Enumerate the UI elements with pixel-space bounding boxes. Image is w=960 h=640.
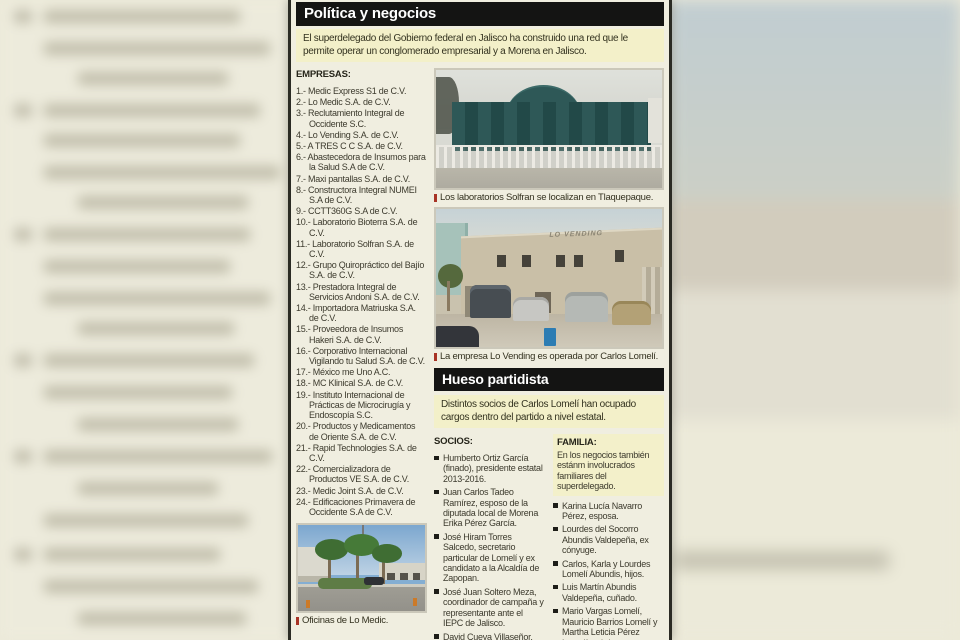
square-bullet-icon bbox=[434, 634, 439, 639]
company-list-item: 11.- Laboratorio Solfran S.A. de C.V. bbox=[296, 239, 427, 259]
company-name: 16.- Corporativo Internacional Vigilando… bbox=[296, 346, 425, 366]
section-title-text: Hueso partidista bbox=[442, 371, 549, 387]
hueso-intro-box: Distintos socios de Carlos Lomelí han oc… bbox=[434, 395, 664, 428]
company-name: 20.- Productos y Medicamentos de Oriente… bbox=[296, 421, 415, 441]
square-bullet-icon bbox=[553, 609, 558, 614]
company-list-item: 24.- Edificaciones Primavera de Occident… bbox=[296, 497, 427, 517]
familiar-text: Lourdes del Socorro Abundis Valdepeña, e… bbox=[562, 524, 649, 555]
company-list-item: 6.- Abastecedora de Insumos para la Salu… bbox=[296, 152, 427, 172]
companies-column: EMPRESAS: 1.- Medic Express S1 de C.V. 2… bbox=[296, 67, 427, 640]
company-list-item: 12.- Grupo Quiropráctico del Bajío S.A. … bbox=[296, 260, 427, 280]
company-name: 5.- A TRES C C S.A. de C.V. bbox=[296, 141, 403, 151]
familiar-list-item: Carlos, Karla y Lourdes Lomelí Abundis, … bbox=[553, 559, 664, 580]
company-name: 9.- CCTT360G S.A de C.V. bbox=[296, 206, 397, 216]
politica-intro-box: El superdelegado del Gobierno federal en… bbox=[296, 29, 664, 62]
familia-header-box: FAMILIA: En los negocios también estánm … bbox=[553, 434, 664, 496]
section-title-hueso: Hueso partidista bbox=[434, 368, 664, 391]
newspaper-infographic: Política y negocios El superdelegado del… bbox=[0, 0, 960, 640]
company-name: 19.- Instituto Internacional de Práctica… bbox=[296, 390, 410, 420]
square-bullet-icon bbox=[553, 503, 558, 508]
company-list-item: 15.- Proveedora de Insumos Hakeri S.A. d… bbox=[296, 324, 427, 344]
socio-list-item: Humberto Ortiz García (finado), presiden… bbox=[434, 453, 545, 484]
caption-solfran: Los laboratorios Solfran se localizan en… bbox=[434, 190, 664, 207]
caption-text: La empresa Lo Vending es operada por Car… bbox=[440, 352, 658, 362]
familiar-text: Mario Vargas Lomelí, Mauricio Barrios Lo… bbox=[562, 606, 657, 640]
red-bullet-icon bbox=[434, 353, 437, 361]
company-name: 4.- Lo Vending S.A. de C.V. bbox=[296, 130, 399, 140]
company-name: 18.- MC Klinical S.A. de C.V. bbox=[296, 378, 403, 388]
section-title-text: Política y negocios bbox=[304, 5, 436, 22]
socio-list-item: Juan Carlos Tadeo Ramírez, esposo de la … bbox=[434, 487, 545, 529]
company-list-item: 17.- México me Uno A.C. bbox=[296, 367, 427, 377]
familia-intro: En los negocios también estánm involucra… bbox=[557, 450, 660, 492]
company-name: 2.- Lo Medic S.A. de C.V. bbox=[296, 97, 390, 107]
caption-lo-medic: Oficinas de Lo Medic. bbox=[296, 613, 427, 630]
background-blur-right bbox=[668, 0, 960, 640]
companies-list: 1.- Medic Express S1 de C.V. 2.- Lo Medi… bbox=[296, 86, 427, 517]
photo-lo-vending: LO VENDING bbox=[434, 207, 664, 349]
square-bullet-icon bbox=[434, 534, 439, 539]
familiar-text: Carlos, Karla y Lourdes Lomelí Abundis, … bbox=[562, 559, 650, 579]
socio-list-item: José Hiram Torres Salcedo, secretario pa… bbox=[434, 532, 545, 584]
company-list-item: 10.- Laboratorio Bioterra S.A. de C.V. bbox=[296, 217, 427, 237]
company-name: 23.- Medic Joint S.A. de C.V. bbox=[296, 486, 403, 496]
partido-columns: SOCIOS: Humberto Ortiz García (finado), … bbox=[434, 434, 664, 640]
familia-label: FAMILIA: bbox=[557, 437, 660, 448]
company-name: 1.- Medic Express S1 de C.V. bbox=[296, 86, 406, 96]
familiar-text: Luis Martín Abundis Valdepeña, cuñado. bbox=[562, 582, 637, 602]
square-bullet-icon bbox=[434, 456, 439, 461]
company-name: 17.- México me Uno A.C. bbox=[296, 367, 390, 377]
square-bullet-icon bbox=[553, 585, 558, 590]
company-list-item: 1.- Medic Express S1 de C.V. bbox=[296, 86, 427, 96]
red-bullet-icon bbox=[434, 194, 437, 202]
square-bullet-icon bbox=[553, 527, 558, 532]
company-list-item: 2.- Lo Medic S.A. de C.V. bbox=[296, 97, 427, 107]
square-bullet-icon bbox=[434, 589, 439, 594]
socio-text: Juan Carlos Tadeo Ramírez, esposo de la … bbox=[443, 487, 538, 528]
company-name: 8.- Constructora Integral NUMEI S.A de C… bbox=[296, 185, 417, 205]
company-name: 22.- Comercializadora de Productos VE S.… bbox=[296, 464, 409, 484]
infographic-panel: Política y negocios El superdelegado del… bbox=[288, 0, 672, 640]
company-name: 14.- Importadora Matriuska S.A. de C.V. bbox=[296, 303, 416, 323]
photo-solfran-lab bbox=[434, 68, 664, 190]
socios-list: Humberto Ortiz García (finado), presiden… bbox=[434, 453, 545, 640]
socio-text: David Cueva Villaseñor, secretario de Fi… bbox=[443, 632, 540, 640]
company-list-item: 5.- A TRES C C S.A. de C.V. bbox=[296, 141, 427, 151]
company-name: 10.- Laboratorio Bioterra S.A. de C.V. bbox=[296, 217, 417, 237]
socio-list-item: José Juan Soltero Meza, coordinador de c… bbox=[434, 587, 545, 629]
company-list-item: 23.- Medic Joint S.A. de C.V. bbox=[296, 486, 427, 496]
socios-label: SOCIOS: bbox=[434, 436, 545, 447]
company-name: 11.- Laboratorio Solfran S.A. de C.V. bbox=[296, 239, 414, 259]
familiar-list-item: Karina Lucía Navarro Pérez, esposa. bbox=[553, 501, 664, 522]
company-name: 13.- Prestadora Integral de Servicios An… bbox=[296, 282, 419, 302]
company-name: 7.- Maxi pantallas S.A. de C.V. bbox=[296, 174, 410, 184]
company-name: 3.- Reclutamiento Integral de Occidente … bbox=[296, 108, 404, 128]
familiar-list-item: Luis Martín Abundis Valdepeña, cuñado. bbox=[553, 582, 664, 603]
empresas-label: EMPRESAS: bbox=[296, 69, 427, 80]
background-blur-left bbox=[0, 0, 292, 640]
company-list-item: 21.- Rapid Technologies S.A. de C.V. bbox=[296, 443, 427, 463]
square-bullet-icon bbox=[434, 490, 439, 495]
socio-text: Humberto Ortiz García (finado), presiden… bbox=[443, 453, 543, 484]
caption-text: Oficinas de Lo Medic. bbox=[302, 616, 388, 626]
familiar-text: Karina Lucía Navarro Pérez, esposa. bbox=[562, 501, 642, 521]
socios-column: SOCIOS: Humberto Ortiz García (finado), … bbox=[434, 434, 545, 640]
familia-column: FAMILIA: En los negocios también estánm … bbox=[553, 434, 664, 640]
company-name: 15.- Proveedora de Insumos Hakeri S.A. d… bbox=[296, 324, 403, 344]
company-list-item: 18.- MC Klinical S.A. de C.V. bbox=[296, 378, 427, 388]
company-list-item: 8.- Constructora Integral NUMEI S.A de C… bbox=[296, 185, 427, 205]
company-name: 21.- Rapid Technologies S.A. de C.V. bbox=[296, 443, 417, 463]
familia-list: Karina Lucía Navarro Pérez, esposa. Lour… bbox=[553, 501, 664, 640]
socio-text: José Hiram Torres Salcedo, secretario pa… bbox=[443, 532, 539, 584]
socio-list-item: David Cueva Villaseñor, secretario de Fi… bbox=[434, 632, 545, 640]
company-name: 24.- Edificaciones Primavera de Occident… bbox=[296, 497, 415, 517]
section-title-politica: Política y negocios bbox=[296, 2, 664, 26]
company-list-item: 22.- Comercializadora de Productos VE S.… bbox=[296, 464, 427, 484]
socio-text: José Juan Soltero Meza, coordinador de c… bbox=[443, 587, 544, 628]
content-columns: EMPRESAS: 1.- Medic Express S1 de C.V. 2… bbox=[296, 67, 664, 640]
company-list-item: 20.- Productos y Medicamentos de Oriente… bbox=[296, 421, 427, 441]
photo-lo-medic-offices bbox=[296, 523, 427, 613]
company-name: 12.- Grupo Quiropráctico del Bajío S.A. … bbox=[296, 260, 424, 280]
caption-text: Los laboratorios Solfran se localizan en… bbox=[440, 193, 653, 203]
red-bullet-icon bbox=[296, 617, 299, 625]
company-list-item: 13.- Prestadora Integral de Servicios An… bbox=[296, 282, 427, 302]
caption-lo-vending: La empresa Lo Vending es operada por Car… bbox=[434, 349, 664, 366]
familiar-list-item: Lourdes del Socorro Abundis Valdepeña, e… bbox=[553, 524, 664, 555]
familiar-list-item: Mario Vargas Lomelí, Mauricio Barrios Lo… bbox=[553, 606, 664, 640]
square-bullet-icon bbox=[553, 561, 558, 566]
company-list-item: 19.- Instituto Internacional de Práctica… bbox=[296, 390, 427, 421]
company-list-item: 16.- Corporativo Internacional Vigilando… bbox=[296, 346, 427, 366]
company-list-item: 14.- Importadora Matriuska S.A. de C.V. bbox=[296, 303, 427, 323]
company-list-item: 4.- Lo Vending S.A. de C.V. bbox=[296, 130, 427, 140]
company-list-item: 3.- Reclutamiento Integral de Occidente … bbox=[296, 108, 427, 128]
company-list-item: 7.- Maxi pantallas S.A. de C.V. bbox=[296, 174, 427, 184]
company-name: 6.- Abastecedora de Insumos para la Salu… bbox=[296, 152, 426, 172]
photos-and-partido-column: Los laboratorios Solfran se localizan en… bbox=[434, 67, 664, 640]
company-list-item: 9.- CCTT360G S.A de C.V. bbox=[296, 206, 427, 216]
